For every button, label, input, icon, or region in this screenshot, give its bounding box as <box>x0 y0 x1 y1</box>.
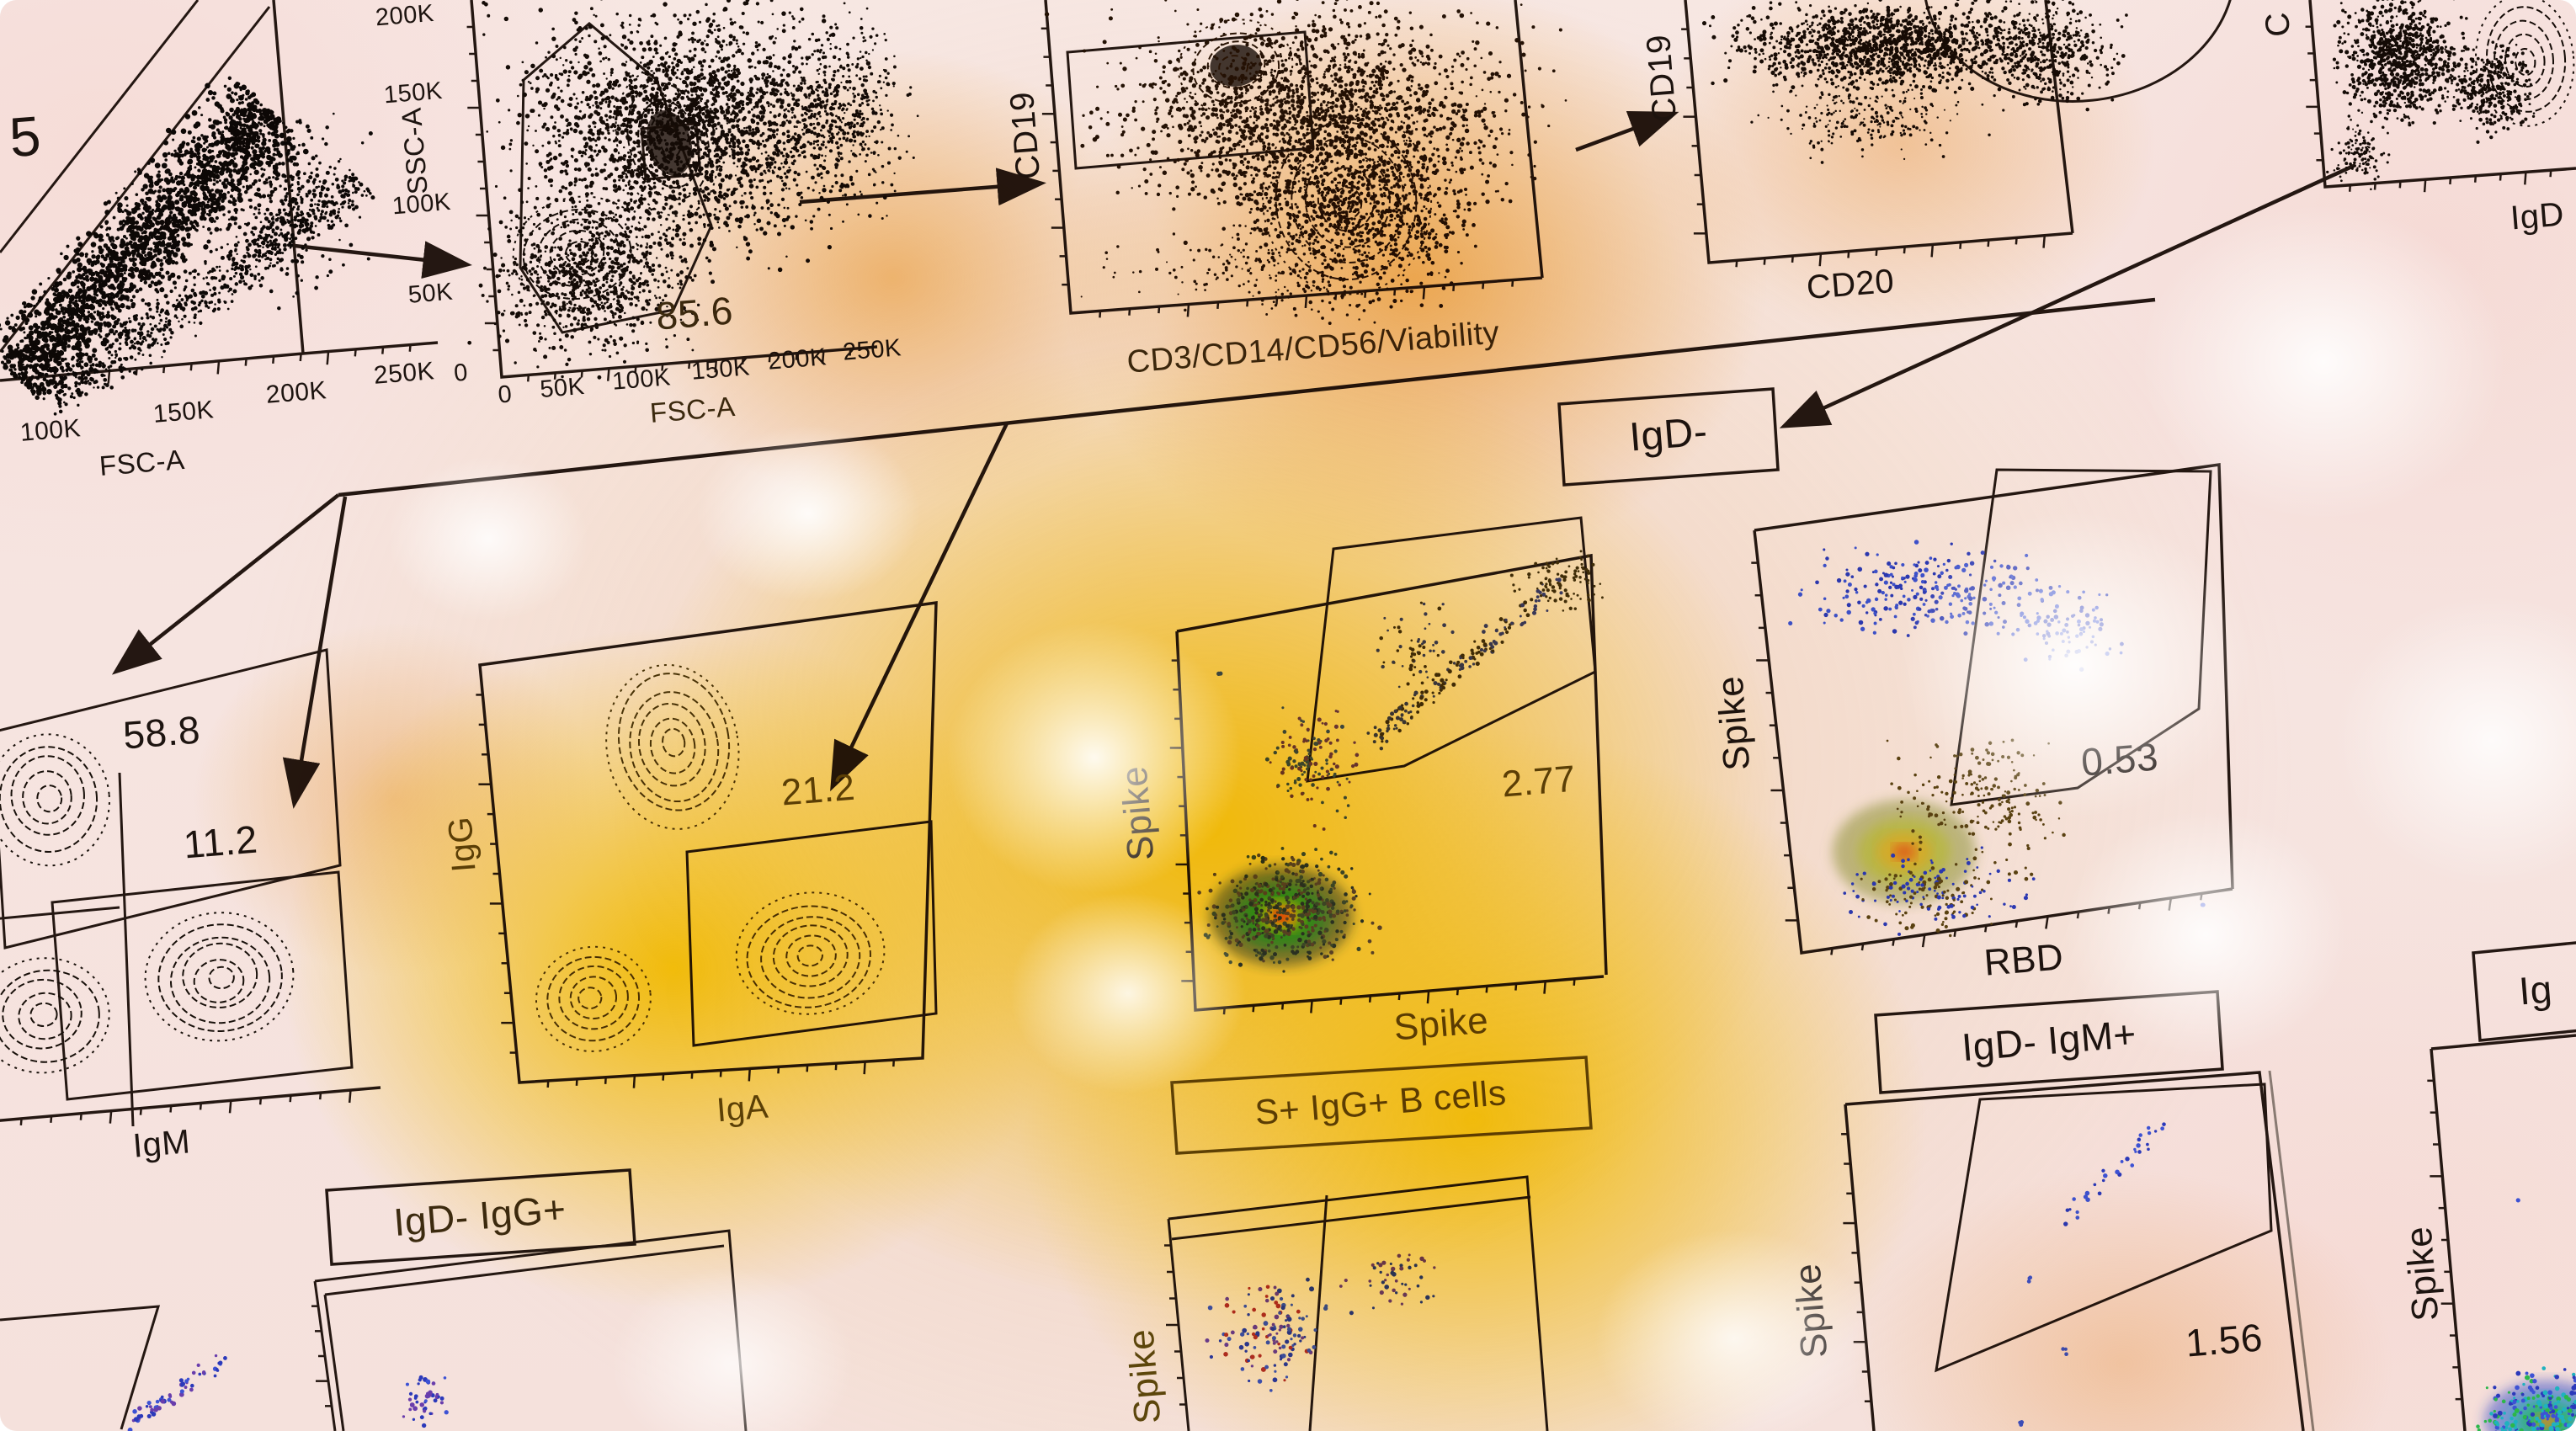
p2-xtick-100k: 100K <box>607 364 676 396</box>
p9-frame <box>1754 465 2233 953</box>
p3-ylabel: CD19 <box>1003 80 1047 192</box>
p2-ytick-50k: 50K <box>402 279 454 309</box>
arrow-p1-p2 <box>295 246 465 264</box>
p5-xlabel: IgD <box>2486 194 2576 237</box>
arrow-p2-p3 <box>800 184 1039 202</box>
p6-gate-11 <box>52 872 352 1099</box>
arrow-to-212 <box>833 423 1007 785</box>
p12-gate-divider <box>1310 1195 1327 1431</box>
p2-xtick-200k: 200K <box>763 344 832 375</box>
flow-cytometry-figure: 5 100K 150K 200K 250K FSC-A 200K 150K 10… <box>0 0 2576 1431</box>
p7-gate-21 <box>687 822 936 1045</box>
pd-frame-double <box>2270 1071 2313 1431</box>
p2-xtick-250k: 250K <box>838 335 907 366</box>
p7-frame <box>480 603 936 1083</box>
p2-ytick-0: 0 <box>417 360 469 390</box>
pd-frame <box>1845 1072 2303 1431</box>
p2-xtick-150k: 150K <box>686 354 755 386</box>
p6-frame <box>0 1088 381 1121</box>
arrow-to-112 <box>295 497 345 801</box>
p4-ylabel: CD19 <box>1640 23 1684 135</box>
p2-xtick-50k: 50K <box>528 373 597 404</box>
p5-ylabel: C <box>2259 0 2298 51</box>
p5-frame <box>2310 0 2576 187</box>
p2-ytick-200k: 200K <box>375 2 427 31</box>
p8-gate-277 <box>1307 518 1595 781</box>
connector-long <box>338 300 2155 495</box>
p1-percent: 5 <box>0 106 53 168</box>
ig-partial-label: Ig <box>2492 966 2576 1013</box>
arrow-to-588 <box>118 495 338 670</box>
pe-frame <box>2431 1035 2576 1431</box>
